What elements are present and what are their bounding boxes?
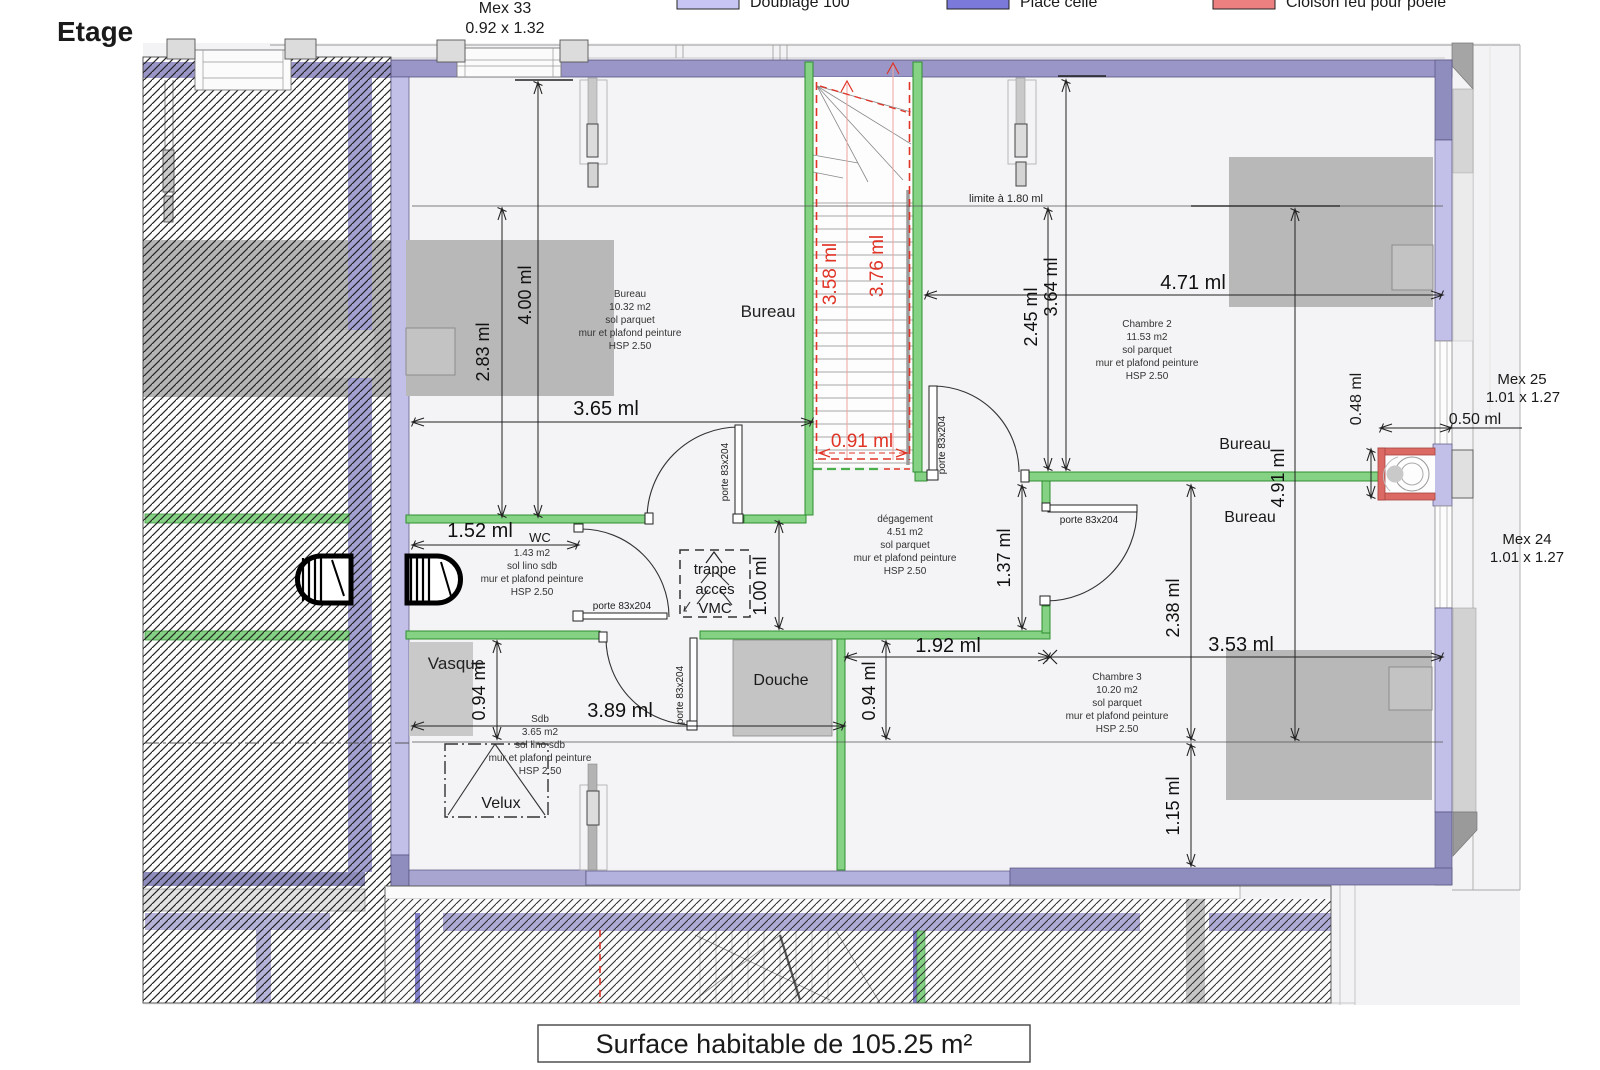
svg-text:Mex 24: Mex 24 bbox=[1502, 531, 1551, 548]
svg-text:1.37 ml: 1.37 ml bbox=[994, 528, 1014, 587]
svg-text:3.65 ml: 3.65 ml bbox=[573, 398, 639, 420]
svg-text:2.45 ml: 2.45 ml bbox=[1021, 287, 1041, 346]
svg-text:HSP 2.50: HSP 2.50 bbox=[511, 587, 554, 598]
svg-text:Douche: Douche bbox=[753, 672, 808, 689]
svg-text:10.32 m2: 10.32 m2 bbox=[609, 302, 651, 313]
svg-text:1.01 x 1.27: 1.01 x 1.27 bbox=[1490, 549, 1564, 566]
svg-text:porte 83x204: porte 83x204 bbox=[720, 442, 731, 501]
svg-text:Place celle: Place celle bbox=[1020, 0, 1097, 11]
svg-text:sol parquet: sol parquet bbox=[880, 540, 930, 551]
svg-text:Mex 25: Mex 25 bbox=[1497, 371, 1546, 388]
svg-text:0.50 ml: 0.50 ml bbox=[1449, 411, 1501, 428]
svg-text:HSP 2.50: HSP 2.50 bbox=[1126, 371, 1169, 382]
svg-text:limite à 1.80 ml: limite à 1.80 ml bbox=[969, 193, 1043, 205]
svg-text:2.83 ml: 2.83 ml bbox=[473, 322, 493, 381]
svg-text:porte 83x204: porte 83x204 bbox=[937, 415, 948, 474]
svg-text:1.43 m2: 1.43 m2 bbox=[514, 548, 551, 559]
svg-text:0.48 ml: 0.48 ml bbox=[1348, 373, 1365, 425]
svg-text:HSP 2.50: HSP 2.50 bbox=[884, 566, 927, 577]
svg-text:1.15 ml: 1.15 ml bbox=[1163, 776, 1183, 835]
svg-text:0.94 ml: 0.94 ml bbox=[859, 661, 879, 720]
svg-text:Surface habitable de 105.25 m²: Surface habitable de 105.25 m² bbox=[596, 1029, 973, 1059]
svg-text:WC: WC bbox=[529, 530, 551, 545]
svg-text:Etage: Etage bbox=[57, 16, 133, 47]
svg-text:4.51 m2: 4.51 m2 bbox=[887, 527, 924, 538]
svg-text:3.65 m2: 3.65 m2 bbox=[522, 727, 559, 738]
svg-text:Bureau: Bureau bbox=[614, 289, 646, 300]
svg-text:Cloison feu pour poêle: Cloison feu pour poêle bbox=[1286, 0, 1446, 11]
svg-text:porte 83x204: porte 83x204 bbox=[593, 601, 652, 612]
svg-text:3.58 ml: 3.58 ml bbox=[820, 243, 841, 305]
svg-text:3.89 ml: 3.89 ml bbox=[587, 700, 653, 722]
svg-text:Mex 33: Mex 33 bbox=[479, 0, 532, 17]
svg-text:4.71 ml: 4.71 ml bbox=[1160, 272, 1226, 294]
svg-text:mur et plafond peinture: mur et plafond peinture bbox=[489, 753, 592, 764]
svg-text:sol lino sdb: sol lino sdb bbox=[515, 740, 565, 751]
svg-text:porte 83x204: porte 83x204 bbox=[675, 665, 686, 724]
svg-text:mur et plafond peinture: mur et plafond peinture bbox=[854, 553, 957, 564]
svg-text:11.53 m2: 11.53 m2 bbox=[1127, 332, 1168, 343]
svg-text:HSP 2.50: HSP 2.50 bbox=[1096, 724, 1139, 735]
svg-text:Doublage 100: Doublage 100 bbox=[750, 0, 850, 11]
svg-text:Bureau: Bureau bbox=[1219, 436, 1271, 453]
svg-text:porte 83x204: porte 83x204 bbox=[1060, 515, 1119, 526]
svg-text:HSP 2.50: HSP 2.50 bbox=[519, 766, 562, 777]
svg-text:mur et plafond peinture: mur et plafond peinture bbox=[481, 574, 584, 585]
svg-text:1.00 ml: 1.00 ml bbox=[750, 556, 770, 615]
svg-text:Bureau: Bureau bbox=[1224, 509, 1276, 526]
svg-text:VMC: VMC bbox=[698, 600, 732, 617]
svg-text:1.01 x 1.27: 1.01 x 1.27 bbox=[1486, 389, 1560, 406]
svg-text:0.91 ml: 0.91 ml bbox=[831, 431, 893, 452]
svg-text:Chambre 3: Chambre 3 bbox=[1092, 672, 1142, 683]
svg-text:Sdb: Sdb bbox=[531, 714, 549, 725]
svg-text:trappe: trappe bbox=[694, 561, 737, 578]
svg-text:sol lino sdb: sol lino sdb bbox=[507, 561, 557, 572]
svg-text:0.92 x 1.32: 0.92 x 1.32 bbox=[465, 20, 544, 37]
svg-text:acces: acces bbox=[695, 581, 734, 598]
svg-text:1.92 ml: 1.92 ml bbox=[915, 635, 981, 657]
svg-text:HSP 2.50: HSP 2.50 bbox=[609, 341, 652, 352]
svg-text:4.00 ml: 4.00 ml bbox=[515, 265, 535, 324]
svg-text:10.20 m2: 10.20 m2 bbox=[1096, 685, 1138, 696]
svg-text:1.52 ml: 1.52 ml bbox=[447, 520, 513, 542]
svg-text:3.76 ml: 3.76 ml bbox=[867, 235, 888, 297]
svg-text:Vasque: Vasque bbox=[428, 654, 484, 673]
svg-text:Bureau: Bureau bbox=[741, 302, 796, 321]
svg-text:Chambre 2: Chambre 2 bbox=[1122, 319, 1172, 330]
svg-text:mur et plafond peinture: mur et plafond peinture bbox=[1066, 711, 1169, 722]
svg-text:sol parquet: sol parquet bbox=[1122, 345, 1172, 356]
svg-text:4.91 ml: 4.91 ml bbox=[1268, 448, 1288, 507]
svg-text:Velux: Velux bbox=[481, 795, 520, 812]
svg-text:3.53 ml: 3.53 ml bbox=[1208, 634, 1274, 656]
svg-text:3.64 ml: 3.64 ml bbox=[1041, 257, 1061, 316]
svg-text:mur et plafond peinture: mur et plafond peinture bbox=[1096, 358, 1199, 369]
svg-text:2.38 ml: 2.38 ml bbox=[1163, 578, 1183, 637]
svg-text:dégagement: dégagement bbox=[877, 514, 933, 525]
svg-text:sol parquet: sol parquet bbox=[605, 315, 655, 326]
svg-text:mur et plafond peinture: mur et plafond peinture bbox=[579, 328, 682, 339]
svg-text:sol parquet: sol parquet bbox=[1092, 698, 1142, 709]
